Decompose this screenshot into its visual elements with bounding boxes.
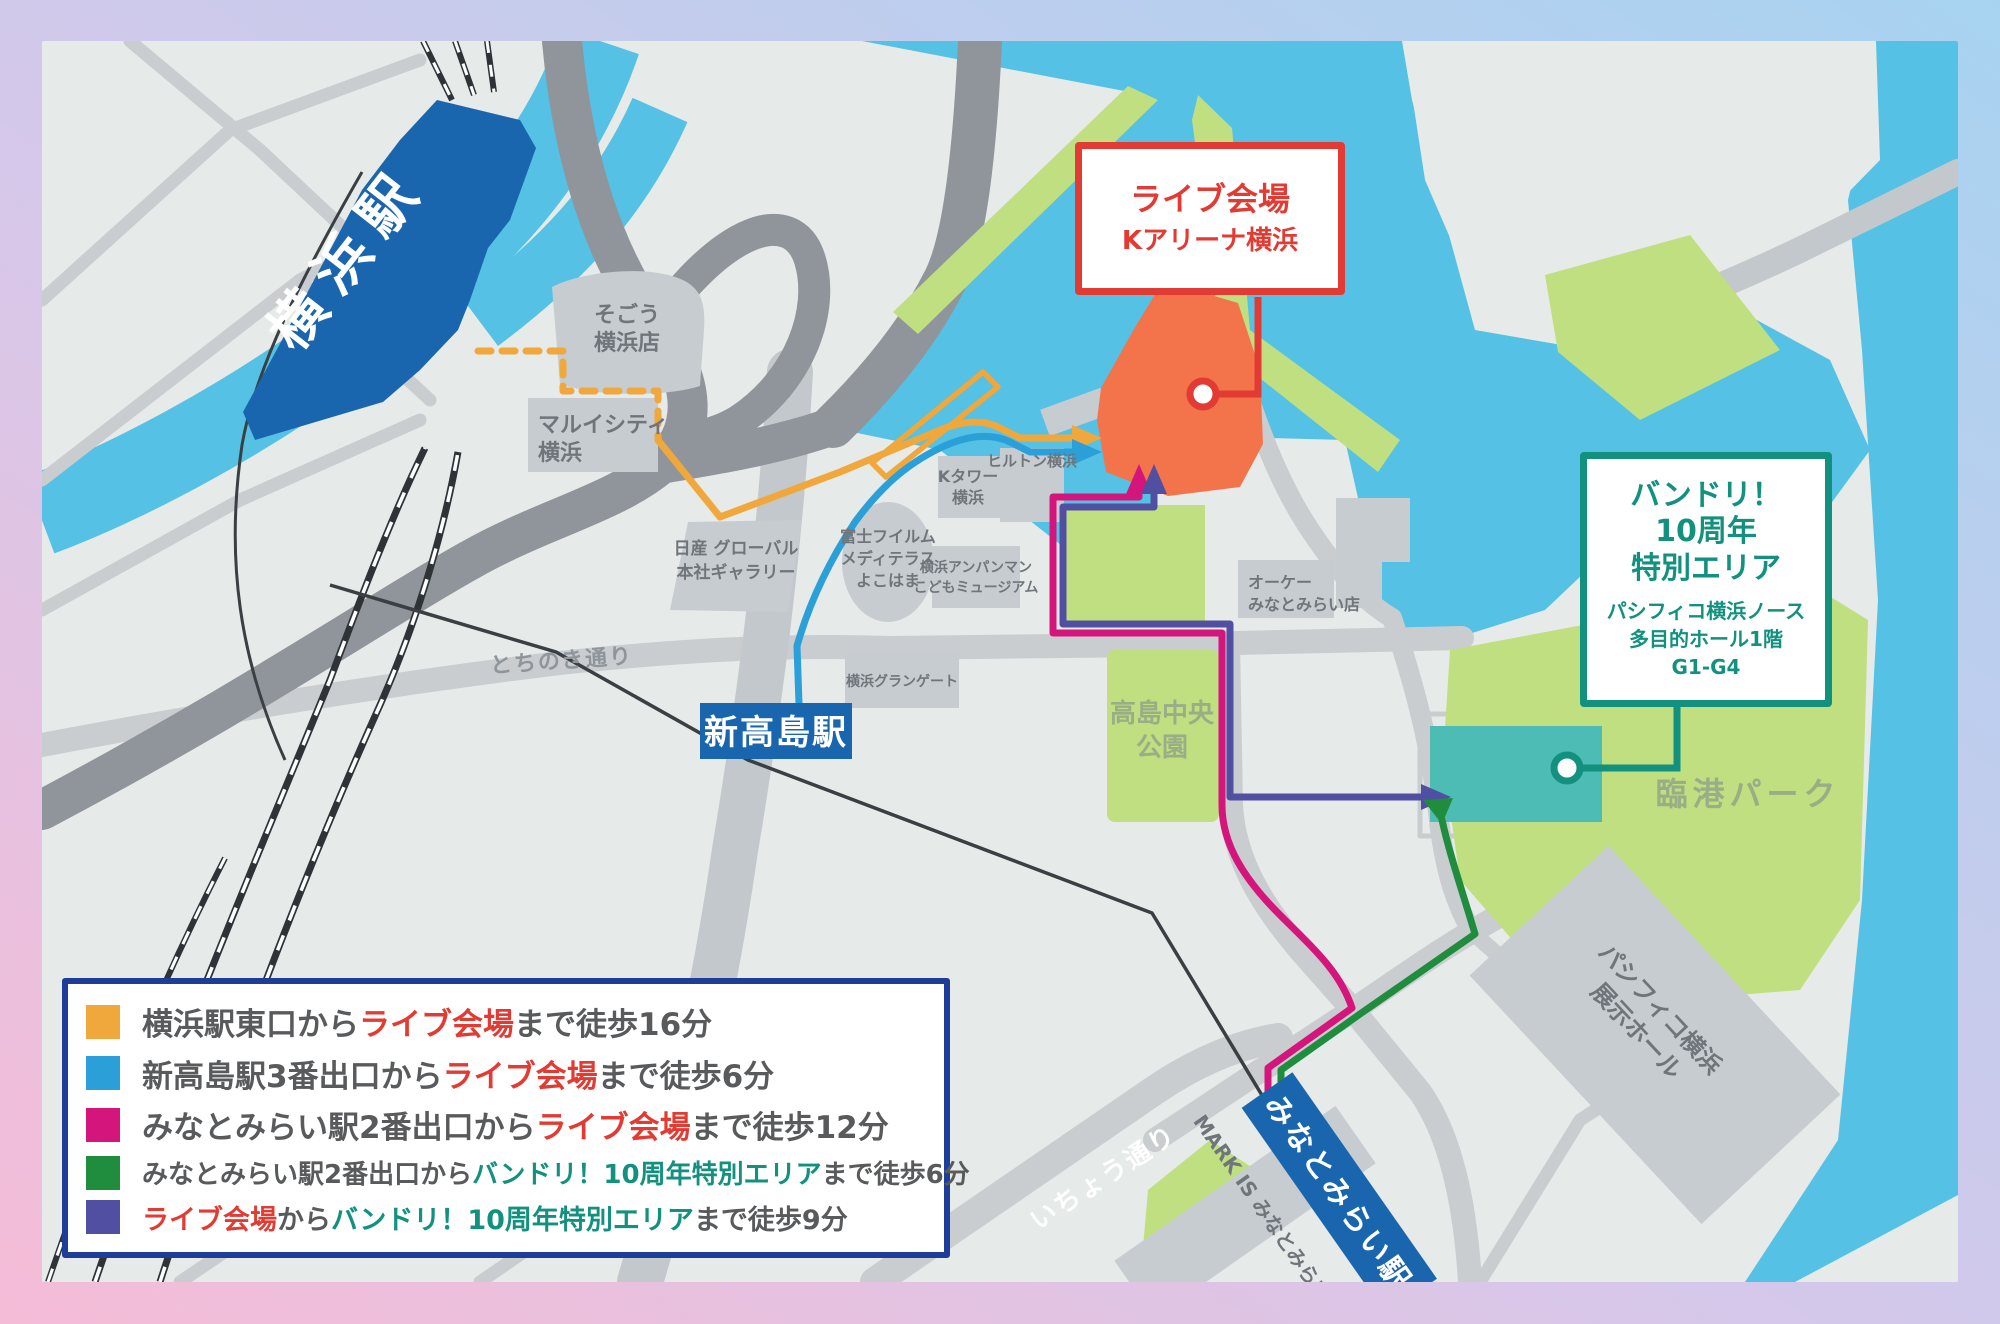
nissan-label-1: 日産 グローバル: [674, 538, 799, 559]
hilton-label: ヒルトン横浜: [987, 452, 1077, 470]
legend-text-3: みなとみらい駅2番出口からライブ会場まで徒歩12分: [142, 1102, 889, 1147]
okstore-label-2: みなとみらい店: [1248, 595, 1360, 614]
fujifilm-label-1: 富士フイルム: [840, 527, 936, 546]
legend-text-part: ライブ会場: [359, 1007, 514, 1043]
callout-special-title-2: 10周年: [1655, 514, 1757, 551]
legend-text-part: ライブ会場: [142, 1205, 277, 1236]
legend-text-part: まで徒歩9分: [694, 1205, 848, 1236]
legend-swatch-3: [86, 1108, 120, 1142]
ktower-label-2: 横浜: [952, 488, 984, 507]
legend-text-part: から: [277, 1205, 331, 1236]
legend-item-3: みなとみらい駅2番出口からライブ会場まで徒歩12分: [86, 1102, 926, 1147]
legend-text-part: まで徒歩6分: [822, 1160, 970, 1190]
callout-special-title-1: バンドリ！: [1630, 478, 1782, 515]
marker-special-area: [1554, 755, 1580, 781]
green-block-west-of-venue: [1062, 505, 1205, 622]
callout-special-subwrap: パシフィコ横浜ノース 多目的ホール1階 G1-G4: [1607, 597, 1806, 681]
anpanman-building: [932, 546, 1020, 608]
legend-text-4: みなとみらい駅2番出口からバンドリ！10周年特別エリアまで徒歩6分: [142, 1154, 970, 1191]
callout-special-sub-3: G1-G4: [1607, 653, 1806, 681]
marui-label-1: マルイシティ: [538, 413, 669, 438]
legend-text-part: ライブ会場: [443, 1059, 598, 1095]
callout-special-sub-2: 多目的ホール1階: [1607, 625, 1806, 653]
legend-text-part: 横浜駅東口から: [142, 1007, 359, 1043]
nissan-label-2: 本社ギャラリー: [677, 562, 796, 583]
legend-text-1: 横浜駅東口からライブ会場まで徒歩16分: [142, 999, 712, 1044]
legend-item-4: みなとみらい駅2番出口からバンドリ！10周年特別エリアまで徒歩6分: [86, 1154, 926, 1191]
callout-live-subtitle: Kアリーナ横浜: [1122, 225, 1298, 259]
legend-text-5: ライブ会場からバンドリ！10周年特別エリアまで徒歩9分: [142, 1198, 848, 1237]
access-map: 横浜駅 新高島駅 みなとみらい駅 そごう 横浜店 マルイシティ 横浜 日産 グロ…: [0, 0, 2000, 1324]
legend-item-5: ライブ会場からバンドリ！10周年特別エリアまで徒歩9分: [86, 1198, 926, 1237]
legend-swatch-2: [86, 1056, 120, 1090]
legend-swatch-1: [86, 1005, 120, 1039]
legend-item-2: 新高島駅3番出口からライブ会場まで徒歩6分: [86, 1051, 926, 1096]
legend-item-1: 横浜駅東口からライブ会場まで徒歩16分: [86, 999, 926, 1044]
rinko-park-label: 臨港パーク: [1655, 775, 1840, 813]
legend-text-part: 新高島駅3番出口から: [142, 1059, 443, 1095]
legend-text-2: 新高島駅3番出口からライブ会場まで徒歩6分: [142, 1051, 774, 1096]
fujifilm-label-3: よこはま: [856, 571, 920, 590]
grangate-label: 横浜グランゲート: [846, 673, 958, 690]
legend: 横浜駅東口からライブ会場まで徒歩16分新高島駅3番出口からライブ会場まで徒歩6分…: [62, 978, 950, 1258]
legend-swatch-4: [86, 1156, 120, 1190]
legend-text-part: まで徒歩16分: [514, 1007, 712, 1043]
marker-live-venue: [1190, 381, 1216, 407]
sogo-label-1: そごう: [594, 302, 660, 328]
legend-text-part: バンドリ！10周年特別エリア: [331, 1205, 694, 1236]
marui-label-2: 横浜: [538, 441, 582, 466]
sogo-label-2: 横浜店: [594, 331, 660, 356]
anpanman-label-1: 横浜アンパンマン: [920, 559, 1032, 576]
takashima-park-label-1: 高島中央: [1110, 698, 1215, 729]
callout-live-venue: ライブ会場 Kアリーナ横浜: [1075, 142, 1345, 295]
anpanman-label-2: こどもミュージアム: [914, 580, 1039, 596]
legend-text-part: みなとみらい駅2番出口から: [142, 1110, 536, 1146]
callout-live-title: ライブ会場: [1130, 179, 1290, 219]
callout-special-sub-1: パシフィコ横浜ノース: [1607, 597, 1806, 625]
legend-text-part: まで徒歩12分: [691, 1110, 889, 1146]
takashima-park-label-2: 公園: [1136, 733, 1188, 763]
legend-text-part: バンドリ！10周年特別エリア: [472, 1160, 821, 1190]
callout-special-area: バンドリ！ 10周年 特別エリア パシフィコ横浜ノース 多目的ホール1階 G1-…: [1580, 452, 1832, 707]
legend-text-part: みなとみらい駅2番出口から: [142, 1160, 472, 1190]
legend-swatch-5: [86, 1200, 120, 1234]
callout-special-title-3: 特別エリア: [1631, 551, 1781, 588]
okstore-label-1: オーケー: [1248, 573, 1312, 592]
legend-text-part: ライブ会場: [536, 1110, 691, 1146]
legend-text-part: まで徒歩6分: [598, 1059, 775, 1095]
shintakashima-station-label: 新高島駅: [704, 713, 848, 753]
